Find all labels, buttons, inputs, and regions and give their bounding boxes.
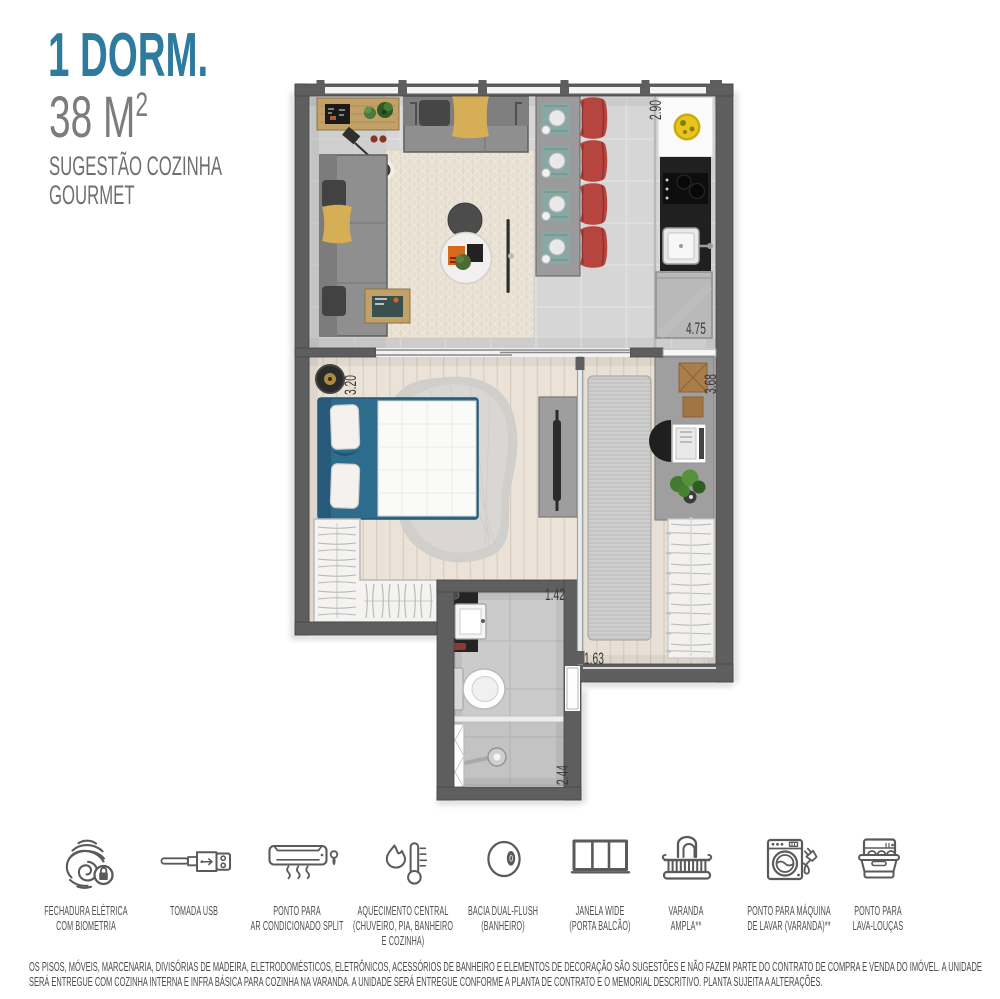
svg-text:3.20: 3.20: [342, 375, 360, 395]
svg-text:2.44: 2.44: [554, 765, 572, 785]
svg-text:4.75: 4.75: [686, 320, 706, 338]
svg-text:3.68: 3.68: [702, 374, 720, 394]
svg-text:2.90: 2.90: [647, 100, 665, 120]
svg-text:1.42: 1.42: [545, 586, 565, 604]
svg-text:1.63: 1.63: [584, 650, 604, 668]
